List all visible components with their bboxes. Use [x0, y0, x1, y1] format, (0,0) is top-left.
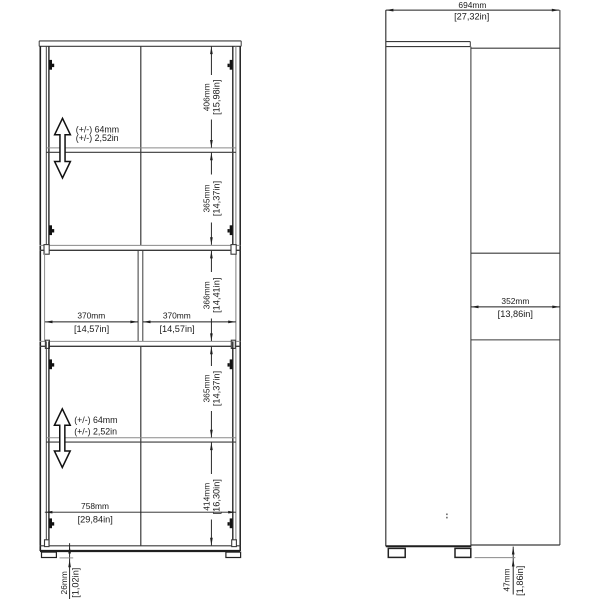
svg-text:370mm: 370mm	[163, 311, 191, 321]
svg-text:(+/-) 2,52in: (+/-) 2,52in	[74, 426, 117, 436]
svg-text:47mm: 47mm	[502, 568, 512, 591]
svg-text:414mm: 414mm	[201, 483, 211, 511]
svg-text:26mm: 26mm	[59, 571, 69, 594]
svg-text:352mm: 352mm	[501, 296, 529, 306]
svg-text:365mm: 365mm	[201, 375, 211, 403]
svg-text:406mm: 406mm	[201, 83, 211, 111]
svg-text:[27,32in]: [27,32in]	[454, 12, 489, 22]
svg-text:[14,37in]: [14,37in]	[211, 371, 221, 406]
svg-text:366mm: 366mm	[201, 281, 211, 309]
svg-text:[14,37in]: [14,37in]	[211, 181, 221, 216]
svg-text:[14,57in]: [14,57in]	[159, 324, 194, 334]
svg-text:365mm: 365mm	[201, 185, 211, 213]
svg-text:370mm: 370mm	[77, 311, 105, 321]
svg-text:[29,84in]: [29,84in]	[78, 514, 113, 524]
svg-text:[1,02in]: [1,02in]	[71, 568, 81, 598]
svg-text:[14,41in]: [14,41in]	[211, 278, 221, 313]
svg-text:[15,98in]: [15,98in]	[211, 80, 221, 115]
svg-text:(+/-) 2,52in: (+/-) 2,52in	[76, 133, 119, 143]
svg-text:[14,57in]: [14,57in]	[74, 324, 109, 334]
svg-text:[1,86in]: [1,86in]	[515, 566, 525, 596]
svg-text:(+/-) 64mm: (+/-) 64mm	[74, 415, 117, 425]
svg-text:694mm: 694mm	[458, 0, 486, 10]
svg-text:[16,30in]: [16,30in]	[211, 479, 221, 514]
svg-text:758mm: 758mm	[81, 501, 109, 511]
svg-text:[13,86in]: [13,86in]	[498, 309, 533, 319]
